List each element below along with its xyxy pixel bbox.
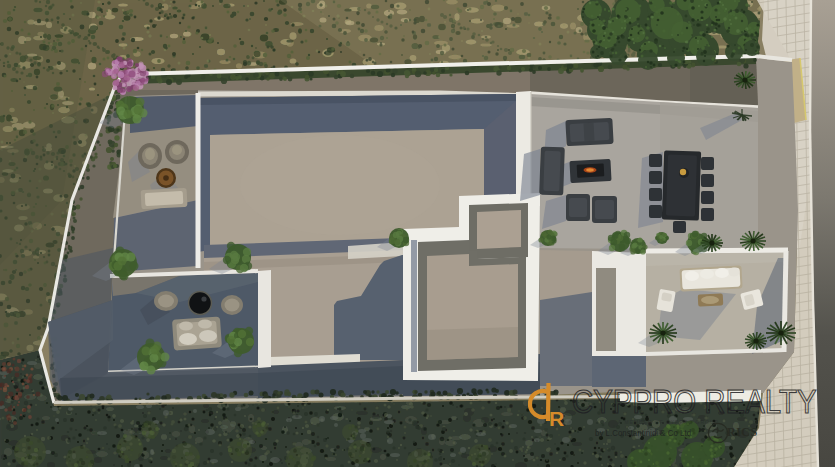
svg-text:R: R (549, 407, 564, 429)
